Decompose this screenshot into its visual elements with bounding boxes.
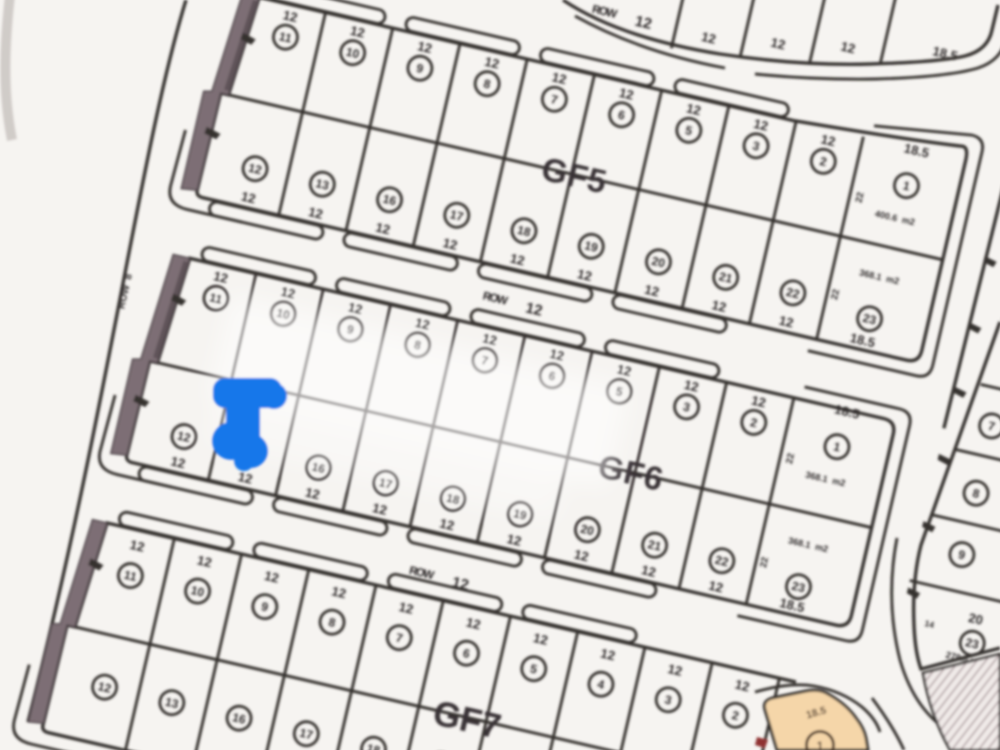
svg-text:1: 1 <box>817 739 824 750</box>
